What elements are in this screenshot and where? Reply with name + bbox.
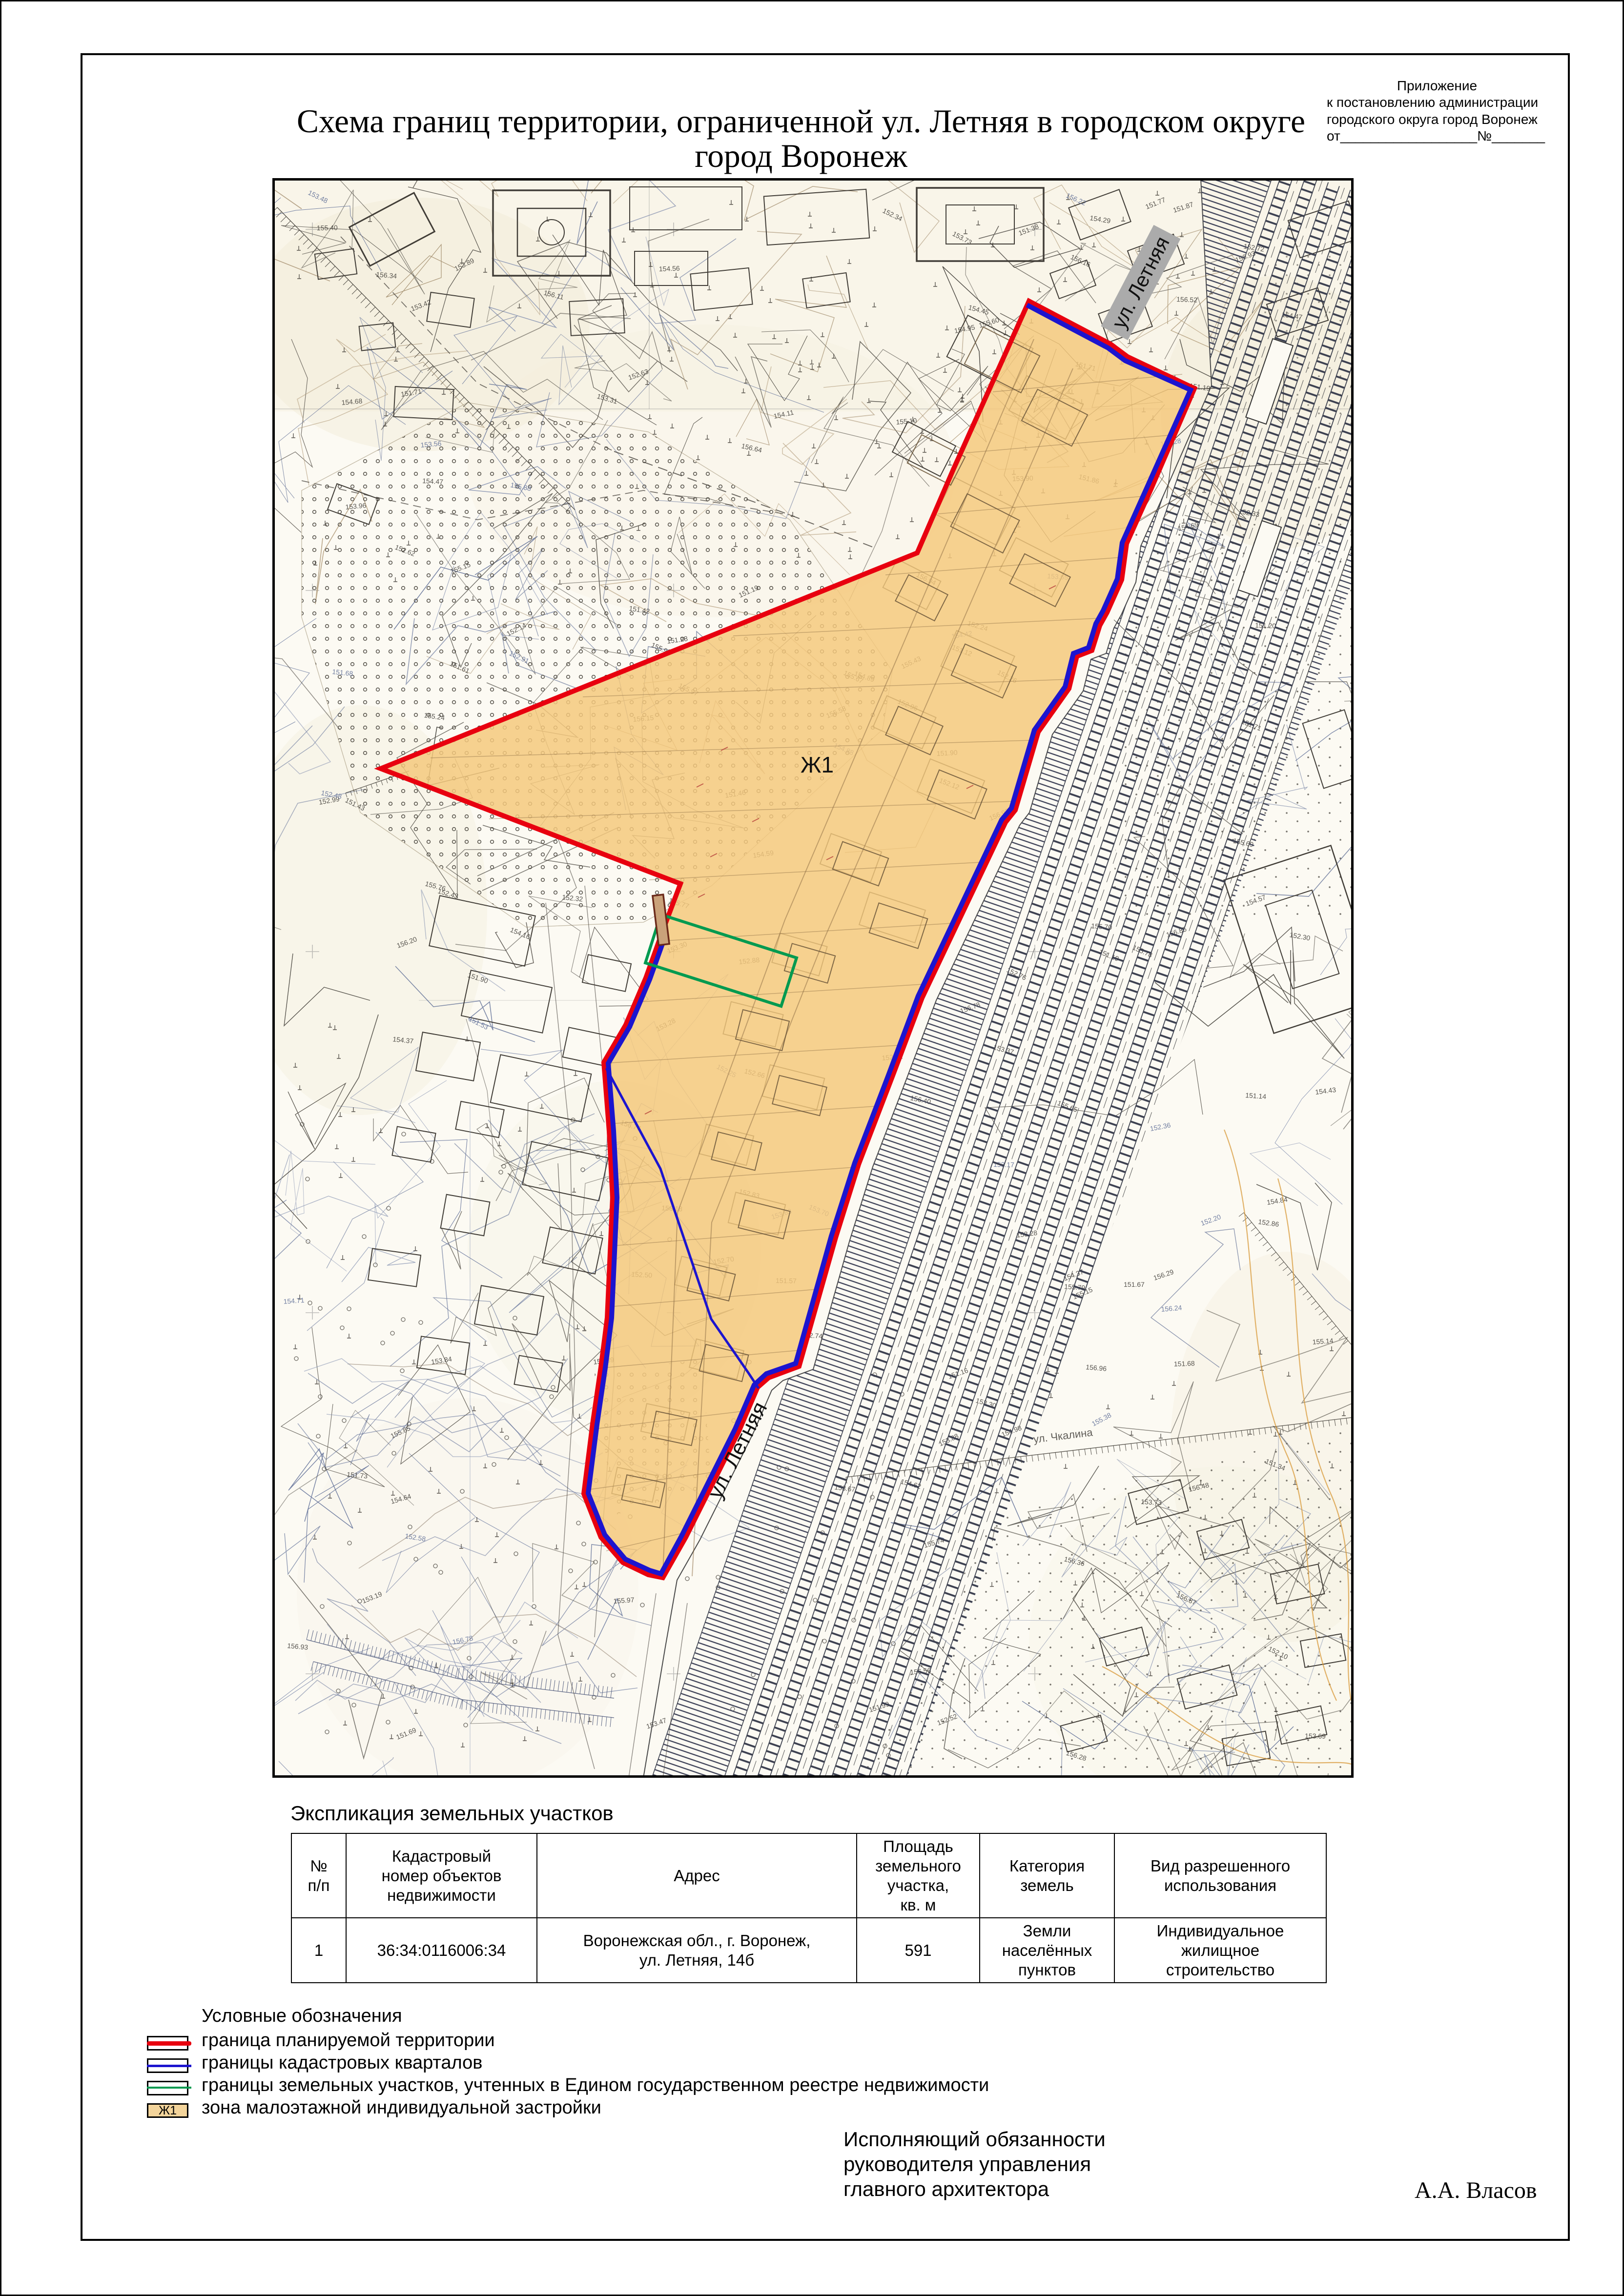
svg-text:151.68: 151.68 <box>1174 1360 1195 1368</box>
svg-text:151.14: 151.14 <box>1245 1091 1267 1100</box>
svg-text:153.73: 153.73 <box>1141 1498 1162 1506</box>
svg-text:154.47: 154.47 <box>422 477 444 486</box>
svg-text:153.69: 153.69 <box>1305 1732 1326 1740</box>
svg-text:151.67: 151.67 <box>1124 1280 1145 1288</box>
svg-text:154.71: 154.71 <box>283 1296 305 1305</box>
svg-text:154.56: 154.56 <box>659 264 680 273</box>
svg-text:Ж1: Ж1 <box>801 752 834 777</box>
svg-text:155.40: 155.40 <box>317 224 338 232</box>
svg-text:155.14: 155.14 <box>1312 1337 1334 1346</box>
svg-text:155.97: 155.97 <box>613 1596 635 1605</box>
svg-text:156.52: 156.52 <box>1176 295 1198 304</box>
